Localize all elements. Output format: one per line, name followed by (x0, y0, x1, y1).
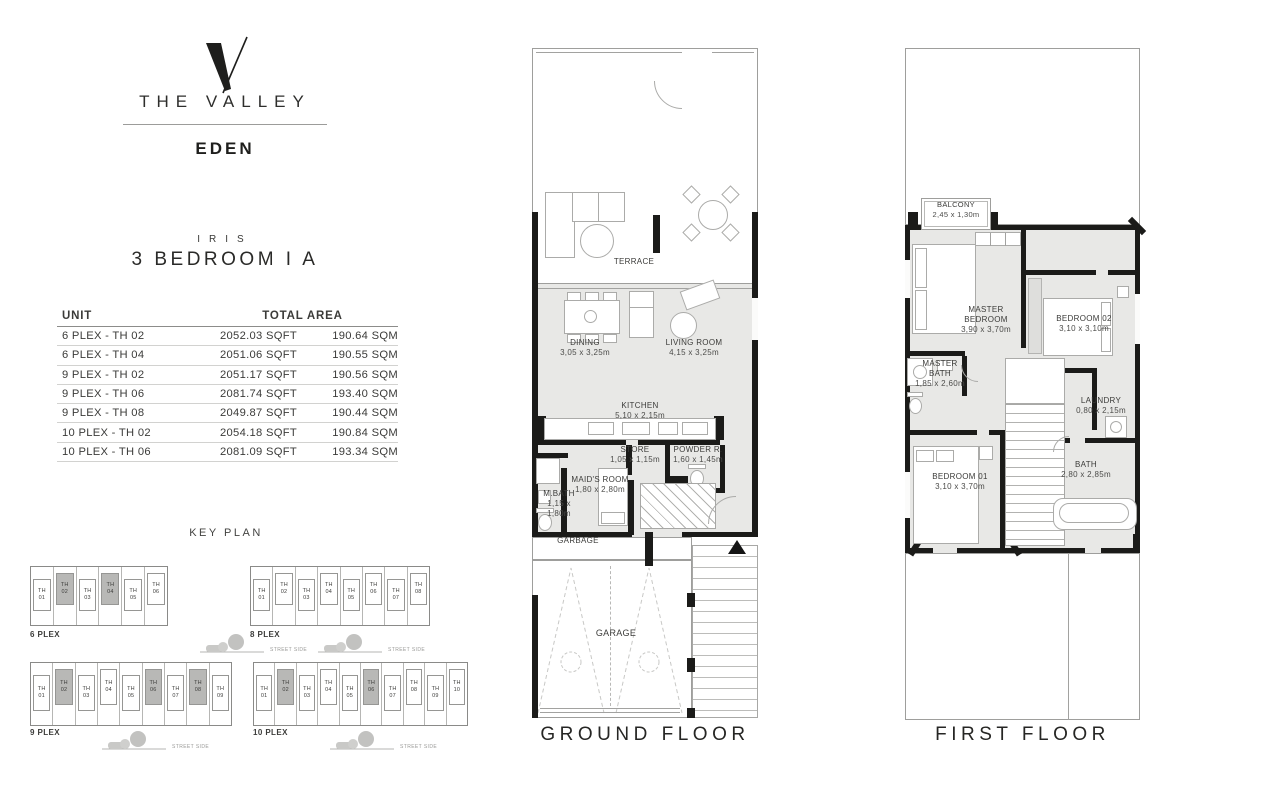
key-plan-column: TH08 (187, 663, 209, 725)
key-plan-column: TH02 (54, 567, 77, 625)
furniture-item (585, 292, 599, 301)
north-arrow-icon (728, 540, 746, 554)
key-plan-column: TH05 (341, 567, 363, 625)
unit-cell: TH08 (189, 669, 206, 705)
furniture-item (622, 422, 650, 435)
unit-cell: TH07 (384, 675, 400, 711)
unit-cell: TH05 (122, 675, 139, 711)
key-plan-column: TH04 (99, 567, 122, 625)
cell-sqft: 2051.06 SQFT (197, 349, 297, 361)
community-name: EDEN (75, 139, 375, 159)
wall-segment (908, 212, 918, 230)
staircase (640, 483, 716, 529)
key-plan-column: TH09 (425, 663, 446, 725)
key-plan-column: TH07 (385, 567, 407, 625)
unit-cell: TH02 (277, 669, 293, 705)
room-label-balcony: BALCONY2,45 x 1,30m (921, 200, 991, 219)
key-plan-column: TH01 (31, 663, 53, 725)
room-label-mbath: M.BATH1,15 x 1,80m (539, 489, 579, 520)
roof-divider-line (1068, 553, 1069, 720)
room-label-dining: DINING3,05 x 3,25m (552, 338, 618, 358)
room-label-kitchen: KITCHEN5,10 x 2,15m (608, 401, 672, 421)
key-plan-9plex: TH01TH02TH03TH04TH05TH06TH07TH08TH09 (30, 662, 232, 726)
wall-segment (1108, 270, 1140, 275)
table-body: 6 PLEX - TH 022052.03 SQFT190.64 SQM6 PL… (57, 327, 398, 462)
room-label-terrace: TERRACE (589, 257, 679, 267)
street-side-marker: STREET SIDE (200, 631, 300, 657)
furniture-round (580, 224, 614, 258)
furniture-item (601, 512, 625, 524)
ground-floor-plan: TERRACE DINING3,05 x 3,25m LIVING ROOM4,… (532, 48, 758, 758)
detail-line (990, 233, 991, 246)
unit-cell: TH01 (253, 579, 270, 611)
plumbing-fixture (909, 398, 922, 414)
room-label-laundry: LAUNDRY0,80 x 2,15m (1061, 396, 1141, 416)
unit-cell: TH01 (256, 675, 272, 711)
first-floor-plan: BALCONY2,45 x 1,30m MASTER BEDROOM3,90 x… (905, 48, 1140, 758)
cell-sqft: 2081.74 SQFT (197, 388, 297, 400)
furniture-item (603, 292, 617, 301)
key-plan-column: TH09 (210, 663, 231, 725)
room-label-bedroom2: BEDROOM 023,10 x 3,10m (1045, 314, 1123, 334)
key-plan-column: TH06 (143, 663, 165, 725)
key-plan-label-6plex: 6 PLEX (30, 630, 60, 639)
wall-segment (682, 532, 758, 537)
furniture-item (936, 450, 954, 462)
street-side-marker: STREET SIDE (330, 728, 430, 754)
street-side-label: STREET SIDE (172, 744, 209, 750)
room-label-bath: BATH2,80 x 2,85m (1051, 460, 1121, 480)
unit-cell: TH05 (342, 675, 358, 711)
wall-segment (1085, 438, 1140, 443)
unit-cell: TH08 (410, 573, 427, 605)
furniture-item (572, 192, 599, 222)
key-plan-column: TH01 (31, 567, 54, 625)
detail-line (540, 708, 680, 709)
unit-cell: TH06 (365, 573, 382, 605)
key-plan-column: TH03 (76, 663, 98, 725)
key-plan-title: KEY PLAN (0, 527, 452, 539)
wall-segment (905, 351, 965, 356)
key-plan-column: TH06 (145, 567, 167, 625)
first-floor-caption: FIRST FLOOR (905, 724, 1140, 746)
unit-cell: TH06 (147, 573, 165, 605)
cell-unit: 9 PLEX - TH 06 (57, 388, 197, 400)
table-row: 9 PLEX - TH 022051.17 SQFT190.56 SQM (57, 366, 398, 385)
unit-cell: TH04 (320, 669, 336, 705)
room-label-store: STORE1,05 x 1,15m (602, 445, 668, 465)
key-plan-column: TH03 (77, 567, 100, 625)
room-label-living: LIVING ROOM4,15 x 3,25m (660, 338, 728, 358)
furniture-item (915, 290, 927, 330)
furniture-round (584, 310, 597, 323)
table-row: 10 PLEX - TH 062081.09 SQFT193.34 SQM (57, 443, 398, 462)
key-plan-column: TH01 (251, 567, 273, 625)
key-plan-column: TH05 (120, 663, 142, 725)
key-plan-column: TH05 (122, 567, 145, 625)
window-opening (905, 472, 910, 518)
brand-divider (123, 124, 327, 125)
wall-segment (687, 708, 695, 718)
unit-cell: TH09 (212, 675, 229, 711)
room-label-bedroom1: BEDROOM 013,10 x 3,70m (925, 472, 995, 492)
collection-name: IRIS (75, 234, 375, 245)
unit-cell: TH10 (449, 669, 465, 705)
brand-name: THE VALLEY (75, 92, 375, 112)
key-plan-column: TH08 (408, 567, 429, 625)
cell-sqm: 190.84 SQM (297, 427, 398, 439)
key-plan-label-10plex: 10 PLEX (253, 728, 288, 737)
table-row: 9 PLEX - TH 082049.87 SQFT190.44 SQM (57, 404, 398, 423)
unit-cell: TH04 (320, 573, 337, 605)
furniture-item (536, 458, 560, 484)
key-plan-column: TH02 (273, 567, 295, 625)
street-side-marker: STREET SIDE (102, 728, 202, 754)
unit-cell: TH03 (298, 579, 315, 611)
cell-sqm: 190.44 SQM (297, 407, 398, 419)
wall-segment (532, 212, 538, 284)
window-opening (1135, 294, 1140, 344)
unit-cell: TH02 (56, 573, 74, 605)
key-plan-6plex: TH01TH02TH03TH04TH05TH06 (30, 566, 168, 626)
cell-sqft: 2081.09 SQFT (197, 446, 297, 458)
table-row: 6 PLEX - TH 042051.06 SQFT190.55 SQM (57, 346, 398, 365)
wall-segment (532, 595, 538, 718)
ground-floor-caption: GROUND FLOOR (532, 724, 758, 746)
cell-sqm: 190.64 SQM (297, 330, 398, 342)
wall-segment (991, 225, 1140, 230)
bathtub (1053, 498, 1137, 530)
key-plan-column: TH02 (53, 663, 75, 725)
furniture-item (545, 192, 575, 258)
wall-segment (752, 212, 758, 284)
furniture-item (588, 422, 614, 435)
key-plan-column: TH06 (361, 663, 382, 725)
unit-cell: TH03 (78, 675, 95, 711)
cell-unit: 9 PLEX - TH 08 (57, 407, 197, 419)
furniture-item (975, 232, 1021, 246)
furniture-round (670, 312, 697, 339)
key-plan-label-9plex: 9 PLEX (30, 728, 60, 737)
unit-cell: TH04 (100, 669, 117, 705)
room-label-garage: GARAGE (584, 628, 648, 640)
furniture-item (658, 422, 678, 435)
unit-cell: TH01 (33, 579, 51, 611)
wall-segment (645, 532, 653, 566)
trees-icon (330, 728, 396, 754)
cell-sqft: 2051.17 SQFT (197, 369, 297, 381)
furniture-item (1005, 358, 1065, 404)
key-plan-10plex: TH01TH02TH03TH04TH05TH06TH07TH08TH09TH10 (253, 662, 468, 726)
unit-cell: TH07 (387, 579, 404, 611)
cell-unit: 10 PLEX - TH 02 (57, 427, 197, 439)
cell-unit: 9 PLEX - TH 02 (57, 369, 197, 381)
key-plan-column: TH06 (363, 567, 385, 625)
table-header: UNIT TOTAL AREA (57, 308, 398, 327)
unit-cell: TH08 (406, 669, 422, 705)
furniture-item (567, 292, 581, 301)
trees-icon (318, 631, 384, 657)
cell-sqm: 190.56 SQM (297, 369, 398, 381)
unit-cell: TH02 (55, 669, 72, 705)
furniture-item (682, 422, 708, 435)
driveway (692, 545, 758, 718)
unit-cell: TH05 (124, 579, 142, 611)
key-plan-column: TH02 (275, 663, 296, 725)
area-table: UNIT TOTAL AREA 6 PLEX - TH 022052.03 SQ… (57, 308, 398, 462)
wall-segment (687, 593, 695, 607)
room-label-garbage: GARBAGE (546, 536, 610, 546)
wall-segment (687, 658, 695, 672)
table-row: 9 PLEX - TH 062081.74 SQFT193.40 SQM (57, 385, 398, 404)
street-side-label: STREET SIDE (400, 744, 437, 750)
unit-cell: TH06 (363, 669, 379, 705)
key-plan-column: TH04 (318, 663, 339, 725)
trees-icon (102, 728, 168, 754)
window-opening (905, 260, 910, 298)
unit-cell: TH03 (299, 675, 315, 711)
unit-cell: TH02 (275, 573, 292, 605)
cell-sqft: 2054.18 SQFT (197, 427, 297, 439)
unit-cell: TH09 (427, 675, 443, 711)
wall-segment (1026, 270, 1096, 275)
detail-line (538, 288, 752, 289)
detail-line (540, 712, 680, 713)
table-row: 10 PLEX - TH 022054.18 SQFT190.84 SQM (57, 423, 398, 442)
valley-logo-icon (192, 33, 258, 99)
key-plan-column: TH07 (382, 663, 403, 725)
cell-sqft: 2049.87 SQFT (197, 407, 297, 419)
unit-cell: TH05 (343, 579, 360, 611)
room-label-master: MASTER BEDROOM3,90 x 3,70m (947, 305, 1025, 336)
cell-unit: 10 PLEX - TH 06 (57, 446, 197, 458)
key-plan-column: TH03 (297, 663, 318, 725)
trees-icon (200, 631, 266, 657)
col-header-total-area: TOTAL AREA (207, 310, 398, 322)
cell-sqm: 190.55 SQM (297, 349, 398, 361)
unit-cell: TH06 (145, 669, 162, 705)
furniture-item (916, 450, 934, 462)
furniture-round (1110, 421, 1122, 433)
cell-sqft: 2052.03 SQFT (197, 330, 297, 342)
window-opening (752, 298, 758, 340)
furniture-item (979, 446, 993, 460)
key-plan-column: TH04 (98, 663, 120, 725)
wall-segment (905, 430, 977, 435)
key-plan-column: TH10 (447, 663, 467, 725)
furniture-round (698, 200, 728, 230)
key-plan-column: TH08 (404, 663, 425, 725)
wardrobe (1028, 278, 1042, 354)
unit-cell: TH01 (33, 675, 50, 711)
cell-sqm: 193.40 SQM (297, 388, 398, 400)
street-side-label: STREET SIDE (388, 647, 425, 653)
detail-line (712, 52, 754, 53)
key-plan-column: TH05 (340, 663, 361, 725)
wall-segment (653, 215, 660, 253)
cell-unit: 6 PLEX - TH 02 (57, 330, 197, 342)
page-title: 3 BEDROOM I A (75, 249, 375, 271)
room-label-powder: POWDER R.1,60 x 1,45m (663, 445, 733, 465)
key-plan-column: TH01 (254, 663, 275, 725)
unit-cell: TH03 (79, 579, 97, 611)
detail-line (536, 52, 682, 53)
col-header-unit: UNIT (57, 310, 207, 322)
key-plan-column: TH04 (318, 567, 340, 625)
unit-cell: TH07 (167, 675, 184, 711)
detail-line (1005, 233, 1006, 246)
key-plan-column: TH03 (296, 567, 318, 625)
wall-segment (1133, 534, 1140, 552)
street-side-label: STREET SIDE (270, 647, 307, 653)
furniture-item (915, 248, 927, 288)
table-row: 6 PLEX - TH 022052.03 SQFT190.64 SQM (57, 327, 398, 346)
bathtub-basin (1059, 503, 1129, 523)
key-plan-column: TH07 (165, 663, 187, 725)
unit-cell: TH04 (101, 573, 119, 605)
key-plan-8plex: TH01TH02TH03TH04TH05TH06TH07TH08 (250, 566, 430, 626)
furniture-item (1117, 286, 1129, 298)
room-label-masterbath: MASTER BATH1,85 x 2,60m (913, 359, 967, 390)
cell-unit: 6 PLEX - TH 04 (57, 349, 197, 361)
roof-terrace-below (905, 553, 1140, 720)
furniture-item (629, 291, 654, 308)
furniture-item (907, 392, 923, 397)
street-side-marker: STREET SIDE (318, 631, 418, 657)
cell-sqm: 193.34 SQM (297, 446, 398, 458)
